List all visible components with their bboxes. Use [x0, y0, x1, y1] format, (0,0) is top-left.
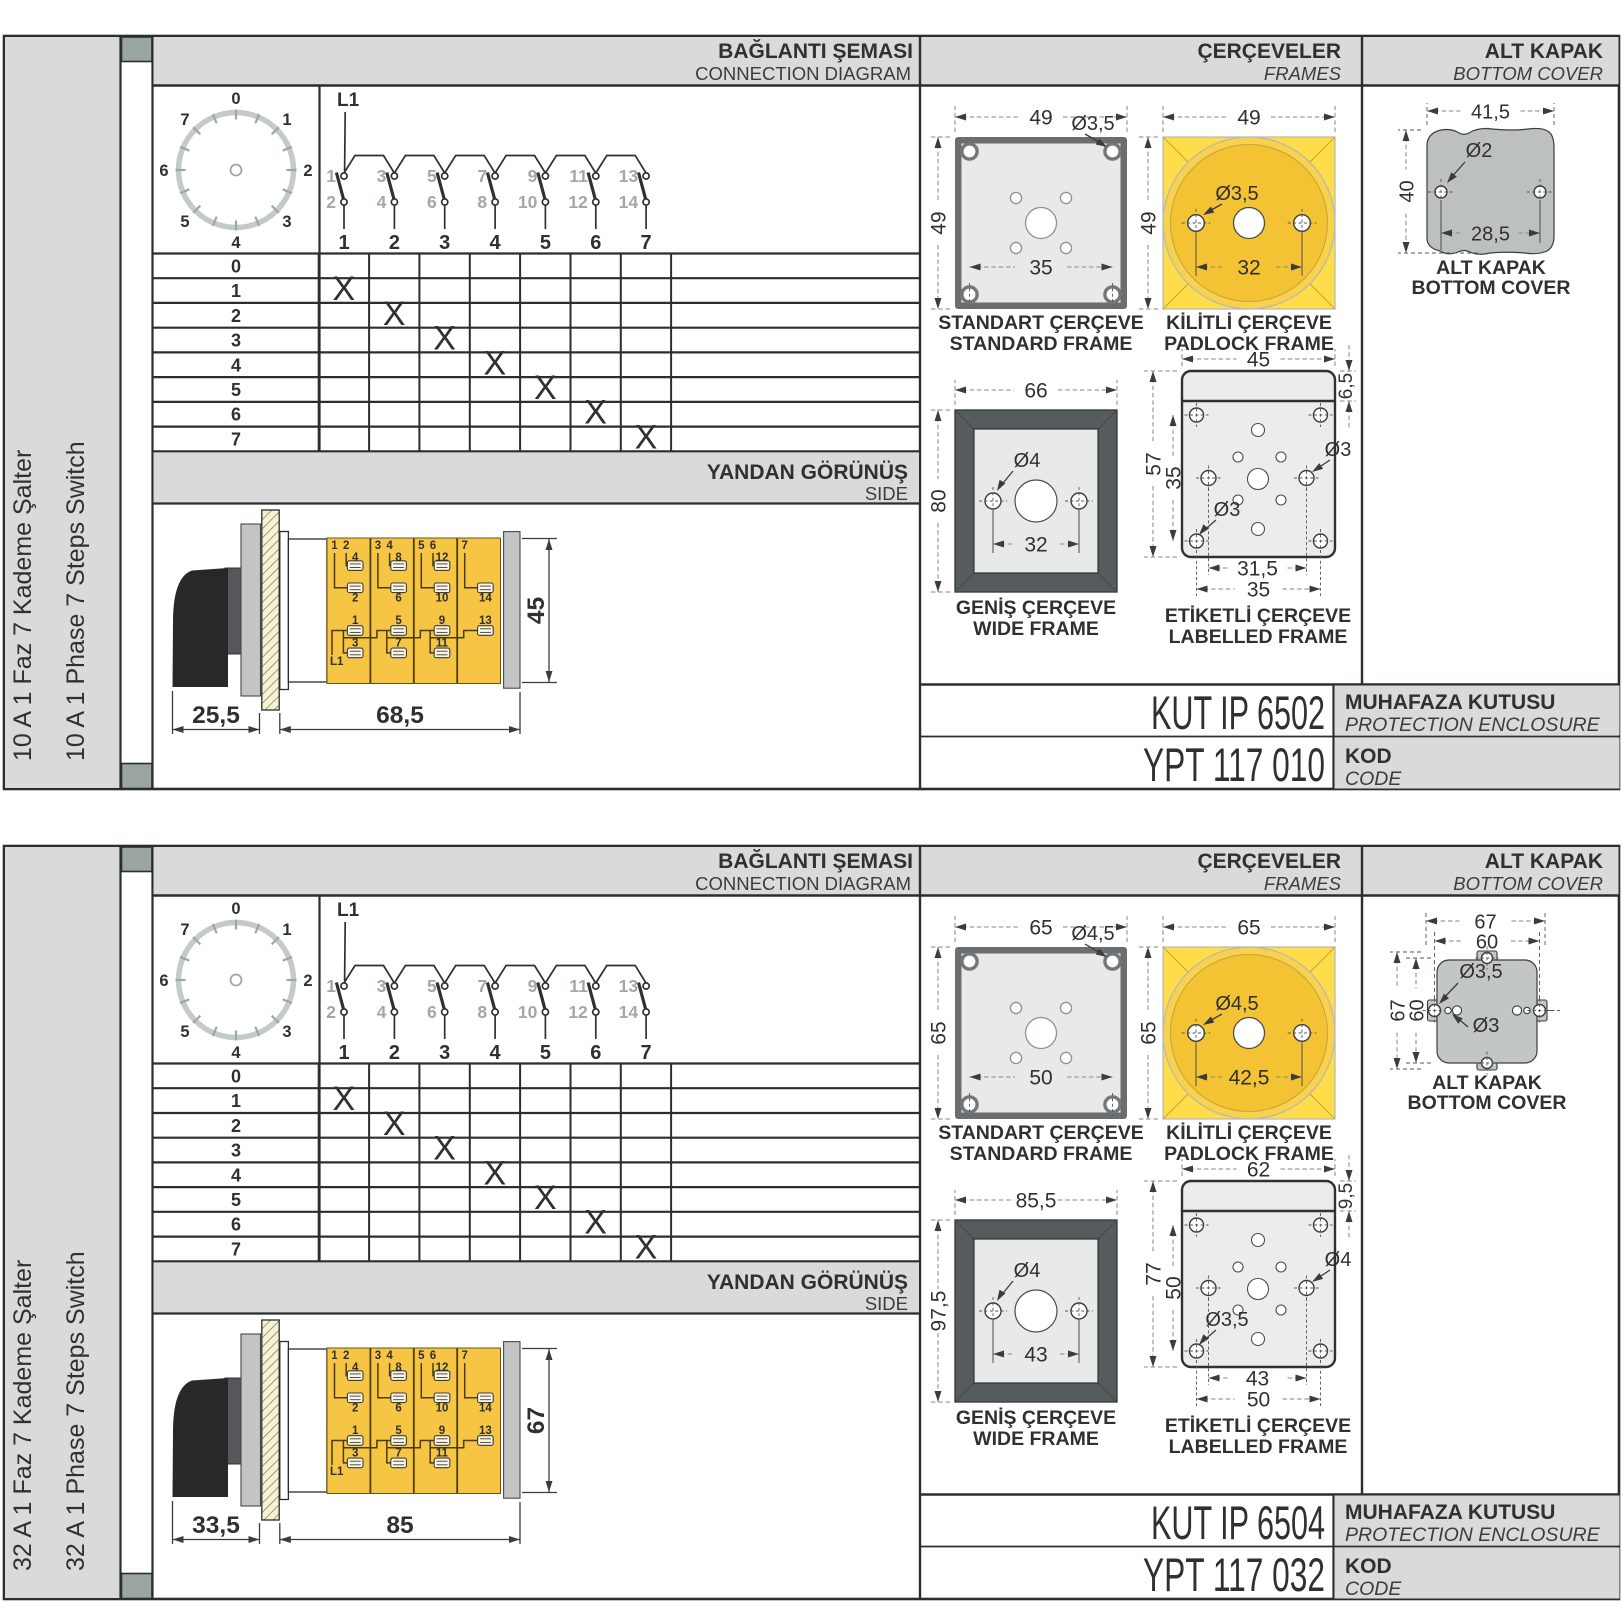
svg-text:LABELLED FRAME: LABELLED FRAME [1169, 626, 1348, 648]
svg-text:2: 2 [352, 593, 358, 605]
svg-text:KOD: KOD [1345, 745, 1392, 768]
svg-text:67: 67 [523, 1407, 550, 1434]
svg-text:7: 7 [641, 1042, 652, 1064]
svg-text:YANDAN GÖRÜNÜŞ: YANDAN GÖRÜNÜŞ [707, 461, 908, 484]
svg-text:66: 66 [1024, 380, 1047, 403]
svg-text:5: 5 [540, 232, 551, 254]
svg-text:4: 4 [490, 1042, 502, 1064]
svg-text:6: 6 [159, 972, 168, 990]
svg-text:45: 45 [523, 597, 550, 624]
svg-text:1: 1 [338, 232, 349, 254]
svg-text:Ø4: Ø4 [1014, 450, 1041, 472]
svg-text:3: 3 [282, 213, 291, 231]
svg-text:4: 4 [231, 1165, 241, 1185]
svg-text:12: 12 [436, 1362, 449, 1374]
svg-text:2: 2 [303, 162, 312, 180]
svg-text:6: 6 [159, 162, 168, 180]
svg-text:X: X [534, 1179, 557, 1217]
svg-text:YANDAN GÖRÜNÜŞ: YANDAN GÖRÜNÜŞ [707, 1271, 908, 1294]
svg-text:SIDE: SIDE [865, 483, 908, 504]
svg-text:Ø3: Ø3 [1214, 499, 1241, 521]
svg-text:BOTTOM COVER: BOTTOM COVER [1408, 1092, 1567, 1114]
svg-text:Ø4,5: Ø4,5 [1071, 923, 1114, 945]
svg-text:PROTECTION ENCLOSURE: PROTECTION ENCLOSURE [1345, 714, 1601, 736]
svg-text:14: 14 [619, 192, 639, 212]
svg-text:STANDARD FRAME: STANDARD FRAME [950, 333, 1133, 355]
svg-text:WIDE FRAME: WIDE FRAME [973, 618, 1099, 640]
svg-text:Ø3,5: Ø3,5 [1215, 183, 1258, 205]
svg-text:13: 13 [619, 976, 639, 996]
svg-text:2: 2 [326, 1002, 336, 1022]
svg-text:28,5: 28,5 [1471, 224, 1510, 246]
svg-text:2: 2 [303, 972, 312, 990]
svg-text:3: 3 [375, 540, 381, 552]
svg-text:6: 6 [430, 540, 436, 552]
svg-text:5: 5 [540, 1042, 551, 1064]
svg-text:5: 5 [418, 540, 425, 552]
svg-text:7: 7 [180, 111, 189, 129]
svg-text:4: 4 [231, 234, 241, 252]
svg-text:10 A 1 Faz 7 Kademe Şalter: 10 A 1 Faz 7 Kademe Şalter [9, 450, 37, 761]
svg-text:Ø3: Ø3 [1325, 439, 1352, 461]
svg-text:Ø3: Ø3 [1473, 1015, 1500, 1037]
svg-text:35: 35 [1029, 257, 1052, 280]
svg-text:4: 4 [490, 232, 502, 254]
svg-text:3: 3 [231, 1141, 241, 1161]
svg-text:32: 32 [1024, 534, 1047, 557]
svg-text:9: 9 [528, 976, 538, 996]
svg-text:Ø4: Ø4 [1325, 1249, 1352, 1271]
svg-text:3: 3 [439, 232, 450, 254]
svg-text:3: 3 [282, 1023, 291, 1041]
svg-text:ÇERÇEVELER: ÇERÇEVELER [1197, 40, 1341, 63]
svg-text:6,5: 6,5 [1336, 373, 1357, 399]
svg-text:WIDE FRAME: WIDE FRAME [973, 1428, 1099, 1450]
svg-text:6: 6 [430, 1350, 436, 1362]
svg-text:1: 1 [326, 166, 336, 186]
svg-text:KOD: KOD [1345, 1555, 1392, 1578]
svg-text:4: 4 [231, 355, 241, 375]
svg-text:11: 11 [569, 976, 588, 996]
svg-text:14: 14 [479, 593, 492, 605]
svg-text:X: X [383, 1105, 406, 1143]
svg-text:41,5: 41,5 [1471, 102, 1510, 124]
svg-text:8: 8 [477, 1002, 487, 1022]
svg-text:6: 6 [395, 1403, 401, 1415]
svg-text:8: 8 [395, 552, 402, 564]
svg-text:SIDE: SIDE [865, 1293, 908, 1314]
svg-text:60: 60 [1476, 932, 1498, 954]
svg-text:MUHAFAZA KUTUSU: MUHAFAZA KUTUSU [1345, 691, 1555, 714]
svg-text:ETİKETLİ ÇERÇEVE: ETİKETLİ ÇERÇEVE [1165, 604, 1351, 627]
svg-text:3: 3 [377, 976, 387, 996]
svg-text:2: 2 [326, 192, 336, 212]
svg-text:BAĞLANTI ŞEMASI: BAĞLANTI ŞEMASI [718, 39, 913, 63]
svg-text:33,5: 33,5 [192, 1512, 240, 1539]
svg-text:ÇERÇEVELER: ÇERÇEVELER [1197, 850, 1341, 873]
svg-text:Ø3,5: Ø3,5 [1459, 961, 1502, 983]
svg-text:5: 5 [180, 1023, 189, 1041]
svg-text:BOTTOM COVER: BOTTOM COVER [1453, 873, 1603, 894]
svg-text:KUT IP 6502: KUT IP 6502 [1151, 686, 1325, 739]
svg-text:KİLİTLİ ÇERÇEVE: KİLİTLİ ÇERÇEVE [1166, 311, 1332, 334]
svg-text:BOTTOM COVER: BOTTOM COVER [1453, 63, 1603, 84]
svg-text:CODE: CODE [1345, 1578, 1402, 1600]
svg-text:49: 49 [1237, 107, 1260, 130]
svg-text:65: 65 [1138, 1021, 1161, 1044]
svg-text:ALT KAPAK: ALT KAPAK [1485, 40, 1603, 63]
svg-text:KUT IP 6504: KUT IP 6504 [1151, 1496, 1325, 1549]
svg-text:9: 9 [528, 166, 538, 186]
svg-text:8: 8 [395, 1362, 402, 1374]
svg-text:STANDARD FRAME: STANDARD FRAME [950, 1143, 1133, 1165]
svg-text:10: 10 [518, 1002, 538, 1022]
svg-text:3: 3 [375, 1350, 381, 1362]
svg-text:3: 3 [439, 1042, 450, 1064]
svg-text:4: 4 [352, 1362, 359, 1374]
svg-text:Ø3,5: Ø3,5 [1205, 1309, 1248, 1331]
svg-text:65: 65 [928, 1021, 951, 1044]
svg-text:2: 2 [231, 306, 241, 326]
svg-text:80: 80 [928, 489, 951, 512]
svg-text:43: 43 [1246, 1368, 1269, 1391]
svg-text:65: 65 [1029, 917, 1052, 940]
svg-text:L1: L1 [330, 1466, 344, 1478]
svg-text:6: 6 [231, 1215, 241, 1235]
svg-text:3: 3 [231, 331, 241, 351]
svg-text:Ø4,5: Ø4,5 [1215, 993, 1258, 1015]
svg-text:50: 50 [1029, 1067, 1052, 1090]
svg-text:97,5: 97,5 [928, 1291, 951, 1332]
svg-text:6: 6 [395, 593, 401, 605]
svg-text:4: 4 [377, 192, 387, 212]
svg-text:0: 0 [231, 900, 240, 918]
svg-text:10: 10 [518, 192, 538, 212]
svg-text:6: 6 [427, 192, 437, 212]
svg-text:9,5: 9,5 [1336, 1183, 1357, 1209]
svg-text:32: 32 [1237, 257, 1260, 280]
svg-text:11: 11 [569, 166, 588, 186]
svg-text:8: 8 [477, 192, 487, 212]
svg-text:Ø2: Ø2 [1466, 140, 1493, 162]
svg-text:1: 1 [282, 921, 291, 939]
svg-text:YPT 117 032: YPT 117 032 [1143, 1548, 1325, 1601]
svg-text:GENİŞ ÇERÇEVE: GENİŞ ÇERÇEVE [956, 1406, 1116, 1429]
svg-text:2: 2 [352, 1403, 358, 1415]
svg-text:4: 4 [386, 1350, 393, 1362]
svg-text:2: 2 [389, 232, 400, 254]
svg-text:X: X [433, 320, 456, 358]
svg-text:L1: L1 [337, 900, 360, 921]
svg-text:42,5: 42,5 [1229, 1067, 1270, 1090]
svg-text:65: 65 [1237, 917, 1260, 940]
svg-text:6: 6 [427, 1002, 437, 1022]
svg-text:10: 10 [436, 593, 449, 605]
svg-text:13: 13 [619, 166, 639, 186]
svg-text:1: 1 [331, 540, 338, 552]
svg-text:7: 7 [477, 976, 487, 996]
svg-text:1: 1 [282, 111, 291, 129]
svg-text:7: 7 [461, 1350, 467, 1362]
svg-text:1: 1 [326, 976, 336, 996]
svg-text:5: 5 [231, 1190, 241, 1210]
svg-text:Ø4: Ø4 [1014, 1260, 1041, 1282]
svg-text:40: 40 [1397, 180, 1419, 202]
svg-text:32 A 1 Faz 7 Kademe Şalter: 32 A 1 Faz 7 Kademe Şalter [9, 1260, 37, 1571]
svg-text:62: 62 [1247, 1159, 1270, 1182]
svg-text:1: 1 [231, 1091, 241, 1111]
svg-text:32 A 1 Phase 7 Steps Switch: 32 A 1 Phase 7 Steps Switch [62, 1251, 90, 1571]
svg-text:10 A 1 Phase 7 Steps Switch: 10 A 1 Phase 7 Steps Switch [62, 441, 90, 761]
svg-text:10: 10 [436, 1403, 449, 1415]
svg-text:LABELLED FRAME: LABELLED FRAME [1169, 1436, 1348, 1458]
svg-text:X: X [534, 369, 557, 407]
svg-text:6: 6 [590, 232, 601, 254]
svg-text:1: 1 [331, 1350, 338, 1362]
svg-text:X: X [584, 1204, 607, 1242]
svg-text:6: 6 [231, 405, 241, 425]
svg-text:5: 5 [418, 1350, 425, 1362]
svg-text:14: 14 [479, 1403, 492, 1415]
svg-text:6: 6 [590, 1042, 601, 1064]
svg-text:49: 49 [1029, 107, 1052, 130]
svg-text:7: 7 [477, 166, 487, 186]
svg-text:31,5: 31,5 [1237, 558, 1278, 581]
svg-text:7: 7 [231, 429, 241, 449]
svg-text:7: 7 [461, 540, 467, 552]
svg-text:2: 2 [343, 540, 349, 552]
svg-text:X: X [333, 1080, 356, 1118]
svg-text:X: X [383, 295, 406, 333]
svg-text:12: 12 [436, 552, 449, 564]
svg-text:4: 4 [377, 1002, 387, 1022]
svg-text:7: 7 [231, 1239, 241, 1259]
svg-text:FRAMES: FRAMES [1264, 873, 1342, 894]
svg-text:1: 1 [231, 281, 241, 301]
svg-text:X: X [635, 418, 658, 456]
svg-text:ALT KAPAK: ALT KAPAK [1436, 257, 1546, 279]
svg-text:KİLİTLİ ÇERÇEVE: KİLİTLİ ÇERÇEVE [1166, 1121, 1332, 1144]
svg-text:3: 3 [377, 166, 387, 186]
svg-text:35: 35 [1163, 466, 1186, 489]
svg-text:L1: L1 [337, 90, 360, 111]
svg-text:X: X [584, 394, 607, 432]
svg-text:85: 85 [386, 1512, 413, 1539]
svg-text:60: 60 [1407, 999, 1429, 1021]
svg-text:0: 0 [231, 256, 241, 276]
svg-text:GENİŞ ÇERÇEVE: GENİŞ ÇERÇEVE [956, 596, 1116, 619]
svg-text:BAĞLANTI ŞEMASI: BAĞLANTI ŞEMASI [718, 849, 913, 873]
svg-text:YPT 117 010: YPT 117 010 [1143, 738, 1325, 791]
svg-text:CODE: CODE [1345, 768, 1402, 790]
svg-text:49: 49 [928, 211, 951, 234]
svg-text:X: X [433, 1130, 456, 1168]
svg-text:1: 1 [338, 1042, 349, 1064]
svg-text:Ø3,5: Ø3,5 [1071, 113, 1114, 135]
svg-text:CONNECTION DIAGRAM: CONNECTION DIAGRAM [695, 873, 911, 894]
svg-text:0: 0 [231, 1066, 241, 1086]
svg-text:X: X [333, 270, 356, 308]
svg-text:4: 4 [386, 540, 393, 552]
svg-text:7: 7 [641, 232, 652, 254]
svg-text:X: X [484, 1154, 507, 1192]
svg-text:85,5: 85,5 [1016, 1190, 1057, 1213]
svg-text:49: 49 [1138, 211, 1161, 234]
svg-text:67: 67 [1474, 912, 1496, 934]
svg-text:43: 43 [1024, 1344, 1047, 1367]
svg-text:68,5: 68,5 [376, 702, 424, 729]
svg-text:25,5: 25,5 [192, 702, 240, 729]
svg-text:50: 50 [1163, 1276, 1186, 1299]
svg-text:4: 4 [352, 552, 359, 564]
svg-text:5: 5 [427, 976, 437, 996]
svg-text:2: 2 [343, 1350, 349, 1362]
svg-text:5: 5 [180, 213, 189, 231]
svg-text:ALT KAPAK: ALT KAPAK [1485, 850, 1603, 873]
svg-text:STANDART ÇERÇEVE: STANDART ÇERÇEVE [938, 312, 1143, 334]
svg-text:ETİKETLİ ÇERÇEVE: ETİKETLİ ÇERÇEVE [1165, 1414, 1351, 1437]
svg-text:2: 2 [389, 1042, 400, 1064]
svg-text:12: 12 [568, 192, 588, 212]
svg-text:STANDART ÇERÇEVE: STANDART ÇERÇEVE [938, 1122, 1143, 1144]
svg-text:50: 50 [1247, 1389, 1270, 1412]
svg-text:5: 5 [427, 166, 437, 186]
svg-text:FRAMES: FRAMES [1264, 63, 1342, 84]
svg-text:45: 45 [1247, 349, 1270, 372]
svg-text:7: 7 [180, 921, 189, 939]
svg-text:BOTTOM COVER: BOTTOM COVER [1412, 277, 1571, 299]
svg-text:ALT KAPAK: ALT KAPAK [1432, 1072, 1542, 1094]
svg-text:L1: L1 [330, 656, 344, 668]
svg-text:CONNECTION DIAGRAM: CONNECTION DIAGRAM [695, 63, 911, 84]
svg-text:5: 5 [231, 380, 241, 400]
svg-text:12: 12 [568, 1002, 588, 1022]
svg-text:35: 35 [1247, 579, 1270, 602]
svg-text:14: 14 [619, 1002, 639, 1022]
svg-text:0: 0 [231, 90, 240, 108]
svg-text:X: X [484, 344, 507, 382]
svg-text:MUHAFAZA KUTUSU: MUHAFAZA KUTUSU [1345, 1501, 1555, 1524]
svg-text:X: X [635, 1228, 658, 1266]
svg-text:2: 2 [231, 1116, 241, 1136]
svg-text:PROTECTION ENCLOSURE: PROTECTION ENCLOSURE [1345, 1524, 1601, 1546]
svg-text:4: 4 [231, 1044, 241, 1062]
